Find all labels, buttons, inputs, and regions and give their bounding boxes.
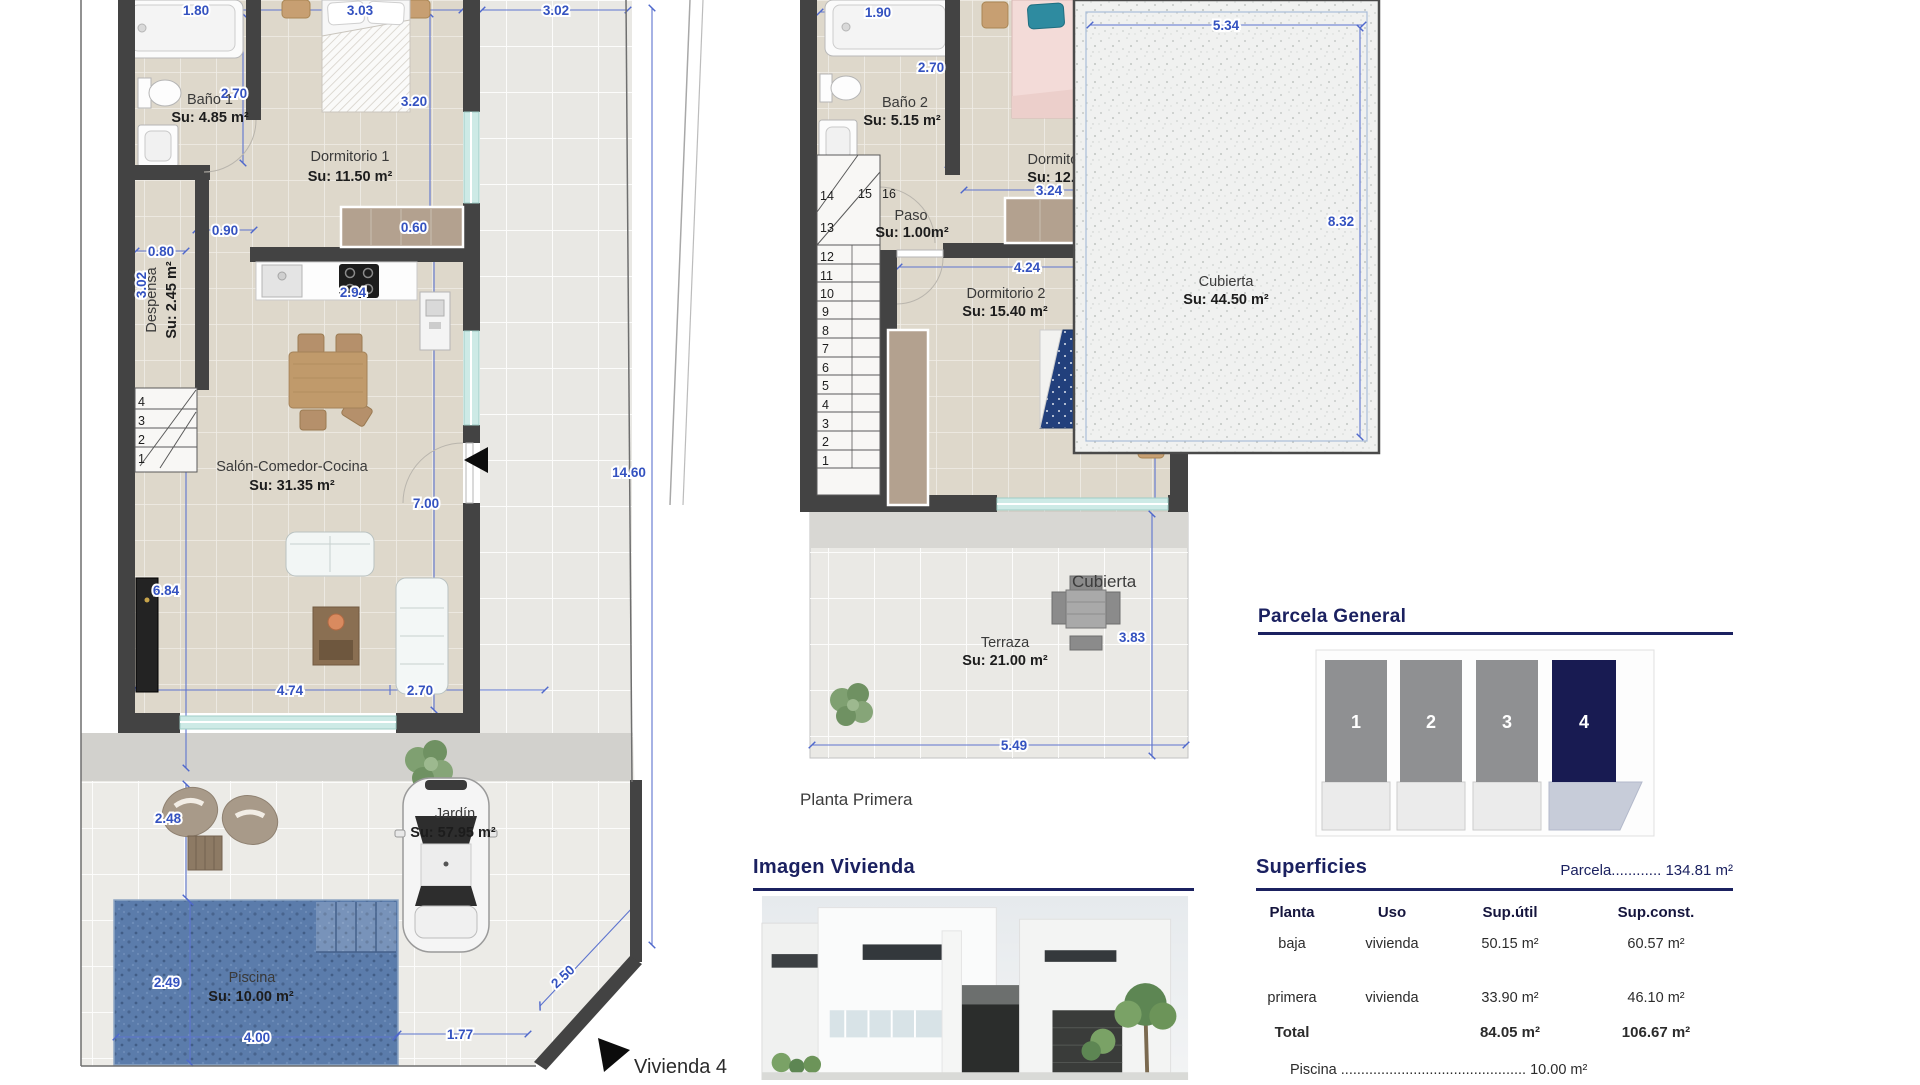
col-planta: Planta [1246,904,1338,921]
superficies-title-rule [1256,888,1733,891]
col-sup-const: Sup.const. [1574,904,1738,921]
dim-label: 3.83 [1119,630,1146,645]
bathroom-sink [138,125,178,167]
dim-label: 2.94 [340,285,367,300]
stair-number: 3 [138,414,145,428]
cell-util: 33.90 m² [1446,990,1574,1006]
vivienda-pointer-icon [598,1038,630,1072]
sofa [286,532,374,576]
room-area: Su: 21.00 m² [962,653,1048,669]
dim-label: 0.60 [401,220,427,235]
wardrobe-dorm2 [888,330,928,505]
kitchen-counter [256,262,417,300]
cell-const: 60.57 m² [1574,936,1738,952]
dim-label: 6.84 [153,583,180,598]
cubierta-caption: Cubierta [1072,572,1136,592]
parcela-total-line: Parcela............ 134.81 m² [1400,862,1733,879]
imagen-title-rule [753,888,1194,891]
plot-number: 2 [1426,712,1436,732]
chaise-longue [396,578,448,694]
dim-label: 2.70 [918,60,944,75]
room-name: Dormitorio 2 [967,286,1046,302]
cell-const: 46.10 m² [1574,990,1738,1006]
superficies-title: Superficies [1256,856,1367,879]
dim-label: 4.24 [1014,260,1041,275]
toilet-2 [820,74,861,102]
neighbor-outline [683,0,703,505]
stair-number: 16 [882,187,896,201]
cell-uso: vivienda [1338,936,1446,952]
superficies-row-baja: baja vivienda 50.15 m² 60.57 m² [1246,936,1738,952]
room-name: Paso [894,208,927,224]
room-name: Jardín [435,806,475,822]
room-area: Su: 57.95 m² [410,825,496,841]
neighbor-outline [670,0,690,505]
stair-number: 4 [138,395,145,409]
parcela-title-rule [1258,632,1733,635]
imagen-vivienda-title: Imagen Vivienda [753,856,915,879]
cell-planta: baja [1246,936,1338,952]
dim-label: 2.49 [154,975,180,990]
stair-number: 13 [820,221,834,235]
stair-number: 11 [820,269,833,283]
dim-label: 5.49 [1001,738,1027,753]
dim-label: 1.80 [183,3,209,18]
cell-util: 50.15 m² [1446,936,1574,952]
stair-number: 2 [822,435,829,449]
cell-total-util: 84.05 m² [1446,1024,1574,1041]
dim-label: 3.02 [543,3,569,18]
parcela-general-diagram: 1 2 3 4 [1316,650,1654,836]
cell-total-label: Total [1246,1024,1338,1041]
car [395,778,497,952]
stair-number: 1 [138,452,145,466]
vivienda-photo [755,896,1195,1080]
col-sup-util: Sup.útil [1446,904,1574,921]
room-name: Dormitorio 1 [311,149,390,165]
vivienda-label: Vivienda 4 [634,1056,727,1079]
col-uso: Uso [1338,904,1446,921]
superficies-row-total: Total 84.05 m² 106.67 m² [1246,1024,1738,1041]
dorm2-door-leaf [897,250,943,257]
room-area: Su: 5.15 m² [863,113,941,129]
room-area: Su: 31.35 m² [249,478,335,494]
fridge [420,292,450,350]
plot-number: 1 [1351,712,1361,732]
dim-label: 0.80 [148,244,174,259]
stair-number: 15 [858,187,872,201]
stair-number: 7 [822,342,829,356]
room-name: Cubierta [1199,274,1255,290]
stair-number: 6 [822,361,829,375]
dim-label: 3.20 [401,94,427,109]
plot-garden [1473,782,1541,830]
plan-cubierta: 5.34 8.32 Cubierta Su: 44.50 m² [1074,0,1379,453]
garden-apron [81,733,632,781]
room-area: Su: 4.85 m² [171,110,249,126]
plot-number: 4 [1579,712,1589,732]
room-area: Su: 11.50 m² [308,169,393,185]
room-name: Baño 1 [187,92,233,108]
dim-label: 8.32 [1328,214,1354,229]
stair-number: 2 [138,433,145,447]
dim-label: 2.48 [155,811,182,826]
stair-number: 4 [822,398,829,412]
room-area: Su: 44.50 m² [1183,292,1269,308]
toilet [138,78,181,108]
dim-label: 4.74 [277,683,304,698]
entrance-door-leaf [466,443,473,503]
vivienda-photo-art [755,896,1195,1080]
plan-planta-baja: 4 3 2 1 1.80 3.03 3.02 2.70 3.20 0.90 0.… [81,0,652,1072]
dim-label: 1.77 [447,1027,473,1042]
room-name: Salón-Comedor-Cocina [216,459,368,475]
stair-number: 5 [822,379,829,393]
dim-label: 7.00 [413,496,439,511]
dim-label: 3.03 [347,3,374,18]
dim-label: 2.70 [407,683,433,698]
stair-number: 3 [822,417,829,431]
dim-label: 5.34 [1213,18,1240,33]
stair-number: 10 [820,287,834,301]
plot-garden [1397,782,1465,830]
room-name: Despensa [144,266,160,332]
stairs-baja: 4 3 2 1 [135,388,197,472]
dim-label: 1.90 [865,5,891,20]
superficies-piscina-line: Piscina ................................… [1290,1062,1730,1078]
plot-number: 3 [1502,712,1512,732]
tv-cabinet [313,607,359,665]
dim-label: 0.90 [212,223,238,238]
stair-number: 12 [820,250,834,264]
plot-garden [1322,782,1390,830]
room-area: Su: 10.00 m² [208,989,294,1005]
stair-number: 8 [822,324,829,338]
superficies-row-primera: primera vivienda 33.90 m² 46.10 m² [1246,990,1738,1006]
room-area: Su: 15.40 m² [962,304,1048,320]
cell-planta: primera [1246,990,1338,1006]
room-area: Su: 1.00m² [875,225,948,241]
parcela-general-title: Parcela General [1258,606,1406,628]
room-name: Piscina [229,970,277,986]
dim-label: 14.60 [612,465,646,480]
room-area: Su: 2.45 m² [164,261,180,339]
terraza-band [810,512,1188,548]
stair-number: 14 [820,189,834,203]
dim-label: 4.00 [244,1030,270,1045]
stair-number: 9 [822,305,829,319]
room-name: Terraza [981,635,1030,651]
stair-number: 1 [822,454,829,468]
planta-primera-caption: Planta Primera [800,790,912,810]
cell-total-const: 106.67 m² [1574,1024,1738,1041]
cell-uso: vivienda [1338,990,1446,1006]
superficies-header-row: Planta Uso Sup.útil Sup.const. [1246,904,1738,921]
room-name: Baño 2 [882,95,928,111]
